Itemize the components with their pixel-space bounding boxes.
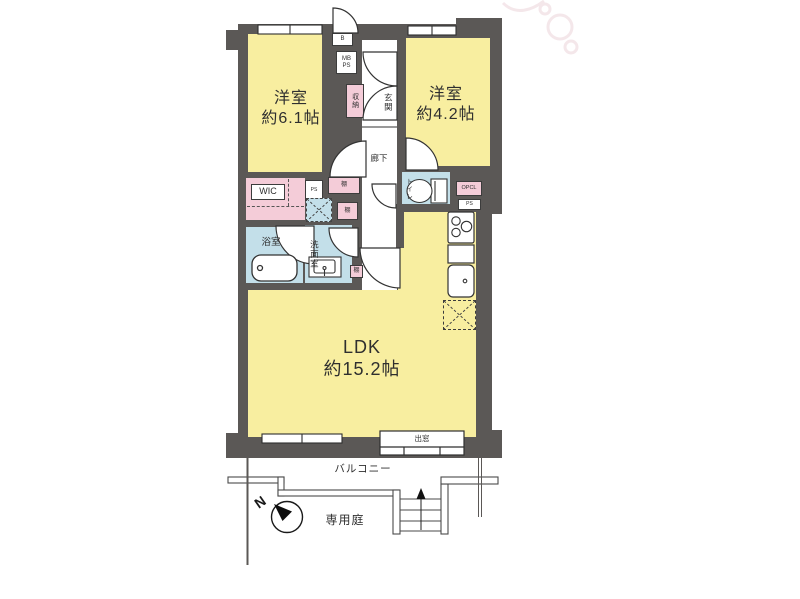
bedroom1-size: 約6.1帖 — [261, 109, 320, 129]
entrance-label: 玄関 — [381, 80, 395, 124]
meter-box-label: B — [340, 36, 344, 42]
garden-label: 専用庭 — [312, 512, 378, 528]
toilet-label: トイレ — [402, 174, 413, 204]
mb-ps-box: MB PS — [336, 51, 357, 74]
bedroom1-name: 洋室 — [274, 89, 308, 109]
toilet-text: トイレ — [403, 178, 411, 201]
stairs-up-arrow — [417, 488, 426, 499]
bedroom1-label: 洋室 約6.1帖 — [248, 86, 334, 132]
balcony-label: バルコニー — [300, 463, 426, 477]
bath-label: 浴室 — [250, 236, 292, 250]
opcl-label: OPCL — [462, 186, 477, 192]
room-entrance-hall — [362, 40, 397, 292]
washer-place-icon — [306, 198, 332, 222]
north-label: N — [251, 493, 268, 512]
bath-text: 浴室 — [261, 237, 280, 249]
bay-window-label: 出窓 — [380, 433, 464, 445]
ldk-label: LDK 約15.2帖 — [282, 334, 442, 382]
bedroom2-label: 洋室 約4.2帖 — [404, 82, 488, 128]
shelf-c-label: 棚 — [353, 268, 359, 274]
shelf-a-label: 棚 — [341, 182, 347, 188]
hallway-label: 廊下 — [362, 152, 396, 164]
washroom-text: 洗面室 — [309, 240, 320, 269]
wall-hall-kitchen-stub — [396, 204, 404, 248]
ps-right-label: PS — [466, 202, 473, 207]
floorplan-canvas: B MB PS 収納 PS 棚 棚 棚 OPCL PS WIC — [0, 0, 800, 599]
shelf-box-a: 棚 — [328, 177, 360, 194]
stairs-icon — [400, 497, 441, 531]
ps-wic-label: PS — [311, 188, 318, 193]
wic-divider-line — [288, 179, 289, 206]
shelf-box-c: 棚 — [350, 265, 363, 278]
bay-window-text: 出窓 — [415, 434, 430, 443]
washroom-label: 洗面室 — [307, 226, 321, 282]
opcl-box: OPCL — [456, 181, 482, 196]
closet-label: 収納 — [351, 93, 358, 109]
wic-hanger-line — [247, 206, 304, 207]
shelf-b-label: 棚 — [344, 208, 350, 214]
ps-box-right: PS — [458, 199, 481, 210]
fridge-place-icon — [443, 300, 476, 330]
shelf-box-b: 棚 — [337, 202, 358, 220]
ldk-size: 約15.2帖 — [323, 358, 400, 381]
outside-margin — [492, 214, 502, 430]
ps-label: PS — [342, 63, 350, 69]
wic-label: WIC — [259, 187, 277, 196]
entrance-text: 玄関 — [383, 93, 394, 112]
meter-box: B — [332, 33, 353, 46]
bedroom2-size: 約4.2帖 — [416, 105, 475, 125]
ldk-name: LDK — [343, 336, 381, 359]
compass-icon: N — [251, 493, 302, 533]
garden-text: 専用庭 — [325, 513, 364, 528]
watermark — [503, 1, 577, 53]
hallway-text: 廊下 — [370, 153, 387, 164]
closet-box: 収納 — [346, 84, 364, 118]
bedroom2-name: 洋室 — [429, 85, 463, 105]
balcony-text: バルコニー — [334, 463, 391, 476]
wic-chip: WIC — [251, 184, 285, 200]
